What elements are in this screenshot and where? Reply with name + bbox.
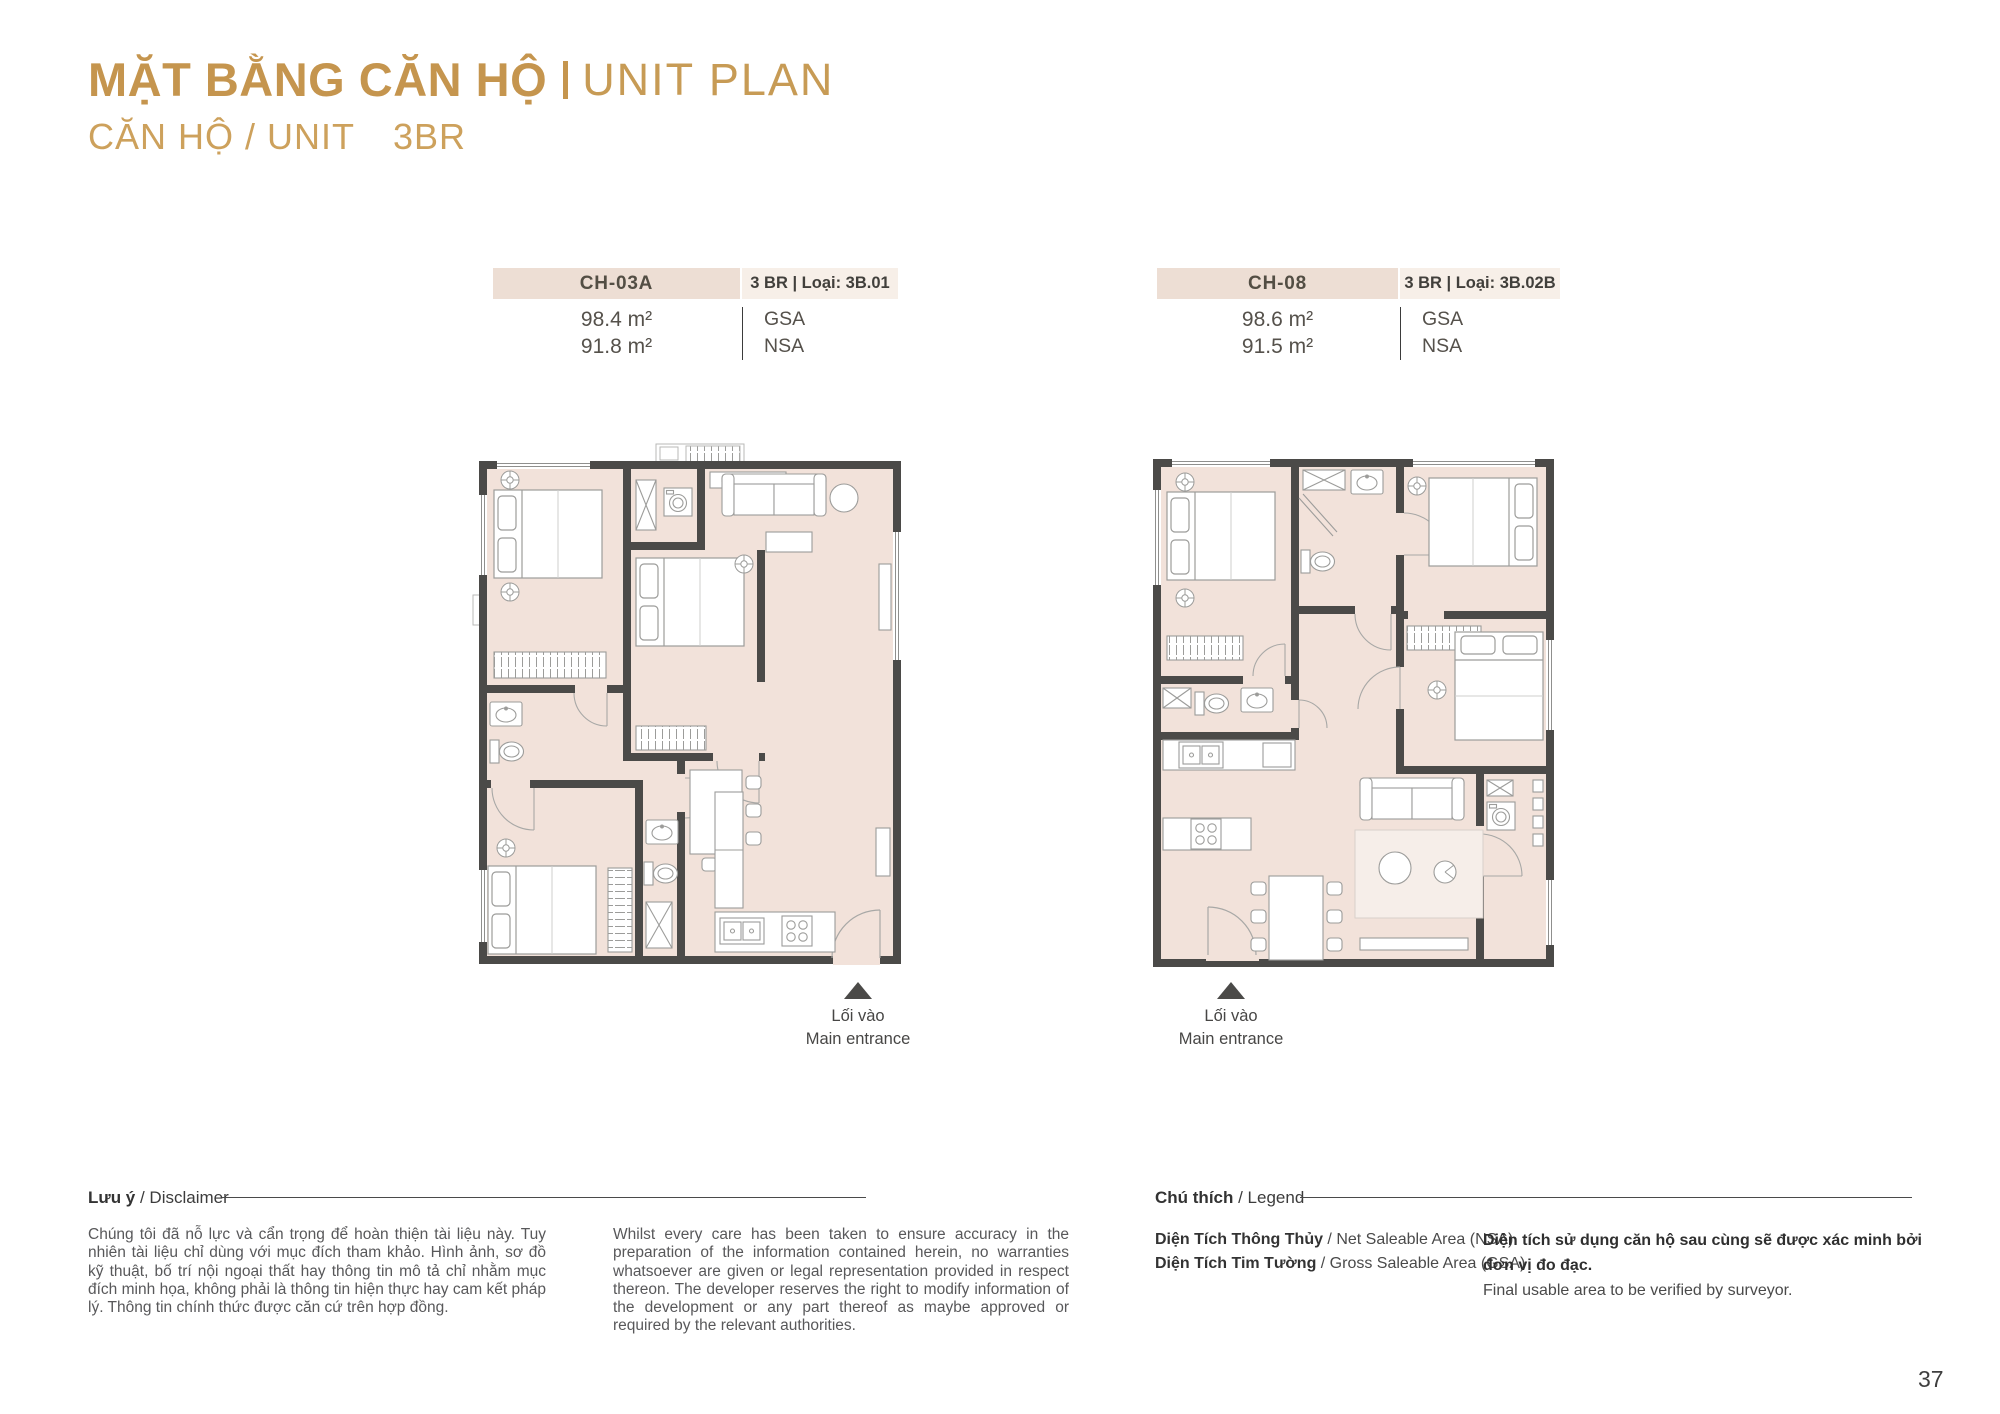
unit1-area-labels: GSA NSA: [764, 306, 805, 360]
entrance-label-en: Main entrance: [1161, 1028, 1301, 1051]
entrance-label-vi: Lối vào: [788, 1005, 928, 1028]
page-title-vi: MẶT BẰNG CĂN HỘ: [88, 52, 547, 107]
unit2-code-bar: CH-08: [1157, 268, 1398, 299]
unit1-type-bar: 3 BR | Loại: 3B.01: [742, 268, 898, 299]
disclaimer-heading-en: / Disclaimer: [135, 1188, 229, 1207]
tv-console-icon: [879, 564, 891, 630]
unit2-nsa-value: 91.5 m²: [1157, 333, 1398, 360]
disclaimer-heading-vi: Lưu ý: [88, 1188, 135, 1207]
entrance-opening: [1206, 950, 1259, 961]
legend-rule: [1300, 1197, 1912, 1198]
entrance-marker-unit2: Lối vào Main entrance: [1161, 982, 1301, 1051]
legend-note-en: Final usable area to be verified by surv…: [1483, 1282, 1793, 1299]
wardrobe-icon: [494, 652, 606, 678]
dining-set: [1251, 876, 1342, 960]
brochure-page: MẶT BẰNG CĂN HỘ UNIT PLAN CĂN HỘ / UNIT …: [0, 0, 2000, 1414]
page-subtitle: CĂN HỘ / UNIT 3BR: [88, 116, 466, 158]
unit1-gsa-label: GSA: [764, 306, 805, 333]
unit2-area-labels: GSA NSA: [1422, 306, 1463, 360]
page-number: 37: [1918, 1366, 1944, 1393]
wardrobe-icon: [636, 726, 706, 750]
legend-heading-en: / Legend: [1233, 1188, 1304, 1207]
entrance-label-vi: Lối vào: [1161, 1005, 1301, 1028]
unit2-gsa-value: 98.6 m²: [1157, 306, 1398, 333]
entrance-label-en: Main entrance: [788, 1028, 928, 1051]
unit1-areas: 98.4 m² 91.8 m²: [493, 306, 740, 360]
entrance-marker-unit1: Lối vào Main entrance: [788, 982, 928, 1051]
entrance-opening: [833, 955, 880, 965]
legend-note-vi: Diện tích sử dụng căn hộ sau cùng sẽ đượ…: [1483, 1232, 1922, 1274]
subtitle-label: CĂN HỘ / UNIT: [88, 116, 355, 158]
legend-row-gsa: Diện Tích Tim Tường / Gross Saleable Are…: [1155, 1252, 1525, 1276]
page-title-en: UNIT PLAN: [582, 54, 834, 106]
legend-heading: Chú thích / Legend: [1155, 1188, 1304, 1208]
legend-row-gsa-vi: Diện Tích Tim Tường: [1155, 1255, 1316, 1272]
tv-console-icon: [1360, 938, 1468, 950]
unit2-area-divider: [1400, 307, 1401, 360]
unit2-nsa-label: NSA: [1422, 333, 1463, 360]
entrance-triangle-icon: [844, 982, 872, 999]
floor-plan-ch-03a: [470, 440, 910, 965]
round-table-icon: [1379, 852, 1411, 884]
legend-heading-vi: Chú thích: [1155, 1188, 1233, 1207]
subtitle-unit-type: 3BR: [393, 116, 466, 158]
disclaimer-rule: [222, 1197, 866, 1198]
unit1-area-divider: [742, 307, 743, 360]
legend-note: Diện tích sử dụng căn hộ sau cùng sẽ đượ…: [1483, 1228, 1953, 1303]
armchair-icon: [830, 484, 858, 512]
legend-row-nsa-vi: Diện Tích Thông Thủy: [1155, 1231, 1323, 1248]
unit1-code-bar: CH-03A: [493, 268, 740, 299]
unit1-nsa-value: 91.8 m²: [493, 333, 740, 360]
floor-plan-ch-08: [1145, 440, 1565, 965]
disclaimer-heading: Lưu ý / Disclaimer: [88, 1188, 229, 1208]
unit2-type-bar: 3 BR | Loại: 3B.02B: [1400, 268, 1560, 299]
hall-cabinet-icon: [876, 828, 890, 876]
disclaimer-text-en: Whilst every care has been taken to ensu…: [613, 1226, 1069, 1336]
unit1-gsa-value: 98.4 m²: [493, 306, 740, 333]
unit2-gsa-label: GSA: [1422, 306, 1463, 333]
page-title: MẶT BẰNG CĂN HỘ UNIT PLAN: [88, 52, 834, 107]
rug-icon: [1355, 830, 1483, 918]
entrance-triangle-icon: [1217, 982, 1245, 999]
coffee-table-icon: [766, 532, 812, 552]
title-separator-bar: [563, 61, 568, 99]
wardrobe-icon: [608, 868, 632, 952]
disclaimer-text-vi: Chúng tôi đã nỗ lực và cẩn trọng để hoàn…: [88, 1226, 546, 1317]
legend-rows: Diện Tích Thông Thủy / Net Saleable Area…: [1155, 1228, 1525, 1276]
legend-row-nsa: Diện Tích Thông Thủy / Net Saleable Area…: [1155, 1228, 1525, 1252]
unit1-nsa-label: NSA: [764, 333, 805, 360]
wardrobe-icon: [1167, 636, 1243, 660]
unit2-areas: 98.6 m² 91.5 m²: [1157, 306, 1398, 360]
